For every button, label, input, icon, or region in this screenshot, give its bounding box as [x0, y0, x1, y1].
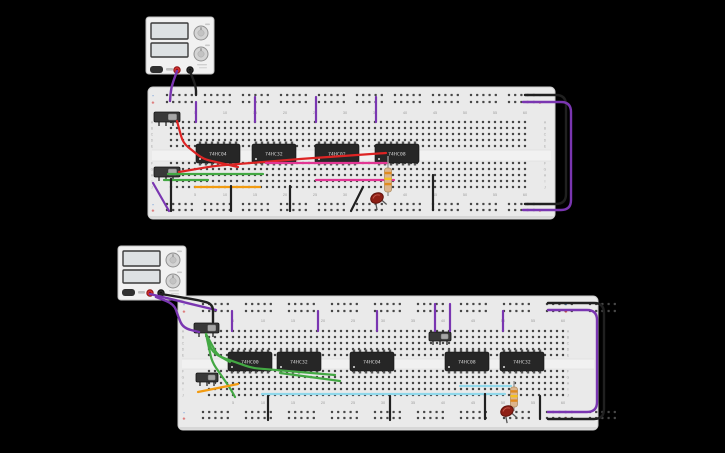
svg-text:-: -	[152, 93, 154, 99]
svg-text:40: 40	[441, 401, 445, 405]
slide-switch-3-b2[interactable]	[429, 332, 451, 345]
svg-text:20: 20	[321, 401, 325, 405]
svg-text:15: 15	[291, 401, 295, 405]
psu-power-button[interactable]	[150, 66, 163, 73]
switch-pin	[206, 382, 208, 386]
svg-text:10: 10	[261, 319, 265, 323]
switch-pin	[198, 333, 200, 337]
svg-text:10: 10	[223, 111, 227, 115]
svg-text:50: 50	[463, 193, 467, 197]
switch-pin	[439, 341, 441, 345]
ic-pin1-dot	[378, 158, 380, 160]
switch-pin	[158, 122, 160, 126]
svg-text:G: G	[151, 167, 154, 171]
psu-display	[123, 251, 160, 266]
switch-pin	[213, 382, 215, 386]
ic-label: 74HC04	[209, 151, 227, 157]
psu-button-label	[166, 68, 173, 71]
board-shadow	[180, 427, 596, 429]
psu-knob-cap	[170, 257, 176, 263]
svg-text:60: 60	[523, 193, 527, 197]
ic-74hc32-b2[interactable]: 74HC32	[500, 350, 544, 374]
svg-text:F: F	[544, 161, 546, 165]
switch-pin	[165, 122, 167, 126]
svg-text:35: 35	[411, 319, 415, 323]
breadboard-bottom: 5510101515202025253030353540404545505055…	[178, 296, 616, 430]
svg-text:50: 50	[463, 111, 467, 115]
svg-text:J: J	[151, 185, 153, 189]
power-supply-bottom[interactable]	[118, 246, 186, 300]
ic-pin1-dot	[353, 366, 355, 368]
switch-slider[interactable]	[208, 325, 216, 331]
ic-label: 74HC32	[513, 359, 531, 365]
ic-pin1-dot	[280, 366, 282, 368]
switch-pin	[158, 177, 160, 181]
psu-display	[123, 270, 160, 283]
svg-text:55: 55	[531, 319, 535, 323]
ic-label: 74HC08	[388, 151, 406, 157]
svg-text:30: 30	[343, 193, 347, 197]
svg-text:30: 30	[381, 319, 385, 323]
svg-text:55: 55	[493, 111, 497, 115]
ic-74hc04-b2[interactable]: 74HC04	[350, 350, 394, 374]
psu-knob-label	[177, 251, 182, 253]
svg-text:50: 50	[501, 401, 505, 405]
resistor-band	[385, 178, 392, 180]
psu-display	[151, 43, 188, 57]
svg-text:J: J	[182, 393, 184, 397]
switch-pin	[212, 333, 214, 337]
psu-button-label	[138, 291, 145, 294]
svg-text:55: 55	[493, 193, 497, 197]
svg-text:+: +	[152, 100, 155, 106]
svg-text:30: 30	[381, 401, 385, 405]
switch-pin	[199, 382, 201, 386]
board-shadow	[150, 216, 553, 218]
psu-knob-cap	[170, 278, 176, 284]
svg-text:5: 5	[194, 193, 196, 197]
svg-text:60: 60	[561, 401, 565, 405]
svg-text:-: -	[183, 410, 185, 416]
psu-display	[151, 23, 188, 39]
svg-text:I: I	[545, 179, 546, 183]
breadboard-top: 5510101515202025253030353540404545505055…	[148, 87, 555, 219]
svg-text:40: 40	[441, 319, 445, 323]
svg-text:I: I	[568, 387, 569, 391]
psu-branding-text	[197, 64, 207, 65]
svg-text:60: 60	[523, 111, 527, 115]
svg-text:60: 60	[561, 319, 565, 323]
svg-text:20: 20	[283, 111, 287, 115]
ic-label: 74HC04	[363, 359, 381, 365]
svg-text:G: G	[567, 375, 570, 379]
svg-text:F: F	[182, 369, 184, 373]
svg-text:25: 25	[351, 401, 355, 405]
ic-pin1-dot	[255, 158, 257, 160]
svg-text:J: J	[544, 185, 546, 189]
svg-text:20: 20	[321, 319, 325, 323]
ic-pin1-dot	[503, 366, 505, 368]
switch-slider[interactable]	[441, 334, 448, 339]
slide-switch-2-b2[interactable]	[196, 373, 218, 386]
switch-pin	[172, 122, 174, 126]
circuit-scene: 5510101515202025253030353540404545505055…	[0, 0, 725, 453]
resistor-band	[511, 395, 518, 397]
svg-text:55: 55	[531, 401, 535, 405]
svg-text:10: 10	[261, 401, 265, 405]
svg-text:45: 45	[471, 401, 475, 405]
ic-pin1-dot	[199, 158, 201, 160]
ic-pin1-dot	[231, 366, 233, 368]
svg-text:G: G	[182, 375, 185, 379]
svg-text:15: 15	[253, 193, 257, 197]
svg-text:25: 25	[351, 319, 355, 323]
svg-text:J: J	[567, 393, 569, 397]
svg-text:40: 40	[403, 193, 407, 197]
svg-text:-: -	[152, 202, 154, 208]
psu-power-button[interactable]	[122, 289, 135, 296]
resistor-band	[385, 172, 392, 174]
svg-text:35: 35	[411, 401, 415, 405]
power-supply-top[interactable]	[146, 17, 214, 74]
ic-pin1-dot	[448, 366, 450, 368]
psu-knob-label	[177, 272, 182, 274]
psu-branding-text	[199, 67, 207, 68]
svg-text:10: 10	[223, 193, 227, 197]
svg-text:30: 30	[343, 111, 347, 115]
svg-text:25: 25	[313, 193, 317, 197]
switch-pin	[446, 341, 448, 345]
psu-knob-cap	[198, 51, 204, 57]
svg-text:F: F	[151, 161, 153, 165]
resistor-band	[511, 399, 518, 401]
svg-text:45: 45	[471, 319, 475, 323]
switch-slider[interactable]	[168, 114, 176, 120]
svg-text:I: I	[183, 387, 184, 391]
svg-text:F: F	[567, 369, 569, 373]
ic-74hc08-b2[interactable]: 74HC08	[445, 350, 489, 374]
ic-label: 74HC08	[458, 359, 476, 365]
svg-text:40: 40	[403, 111, 407, 115]
switch-slider[interactable]	[208, 375, 215, 380]
switch-pin	[432, 341, 434, 345]
svg-text:5: 5	[232, 401, 234, 405]
svg-text:45: 45	[433, 111, 437, 115]
ic-label: 74HC32	[290, 359, 308, 365]
resistor-band	[511, 390, 518, 392]
ic-label: 74HC32	[265, 151, 283, 157]
svg-text:+: +	[183, 416, 186, 422]
tinkercad-circuit-canvas[interactable]: 5510101515202025253030353540404545505055…	[0, 0, 725, 453]
psu-branding-text	[169, 290, 179, 291]
psu-branding-text	[171, 293, 179, 294]
svg-text:20: 20	[283, 193, 287, 197]
psu-knob-label	[205, 24, 210, 26]
svg-text:15: 15	[291, 319, 295, 323]
svg-text:G: G	[544, 167, 547, 171]
psu-knob-label	[205, 45, 210, 47]
svg-text:+: +	[183, 309, 186, 315]
svg-text:+: +	[152, 208, 155, 214]
resistor-band	[385, 183, 392, 185]
psu-knob-cap	[198, 30, 204, 36]
